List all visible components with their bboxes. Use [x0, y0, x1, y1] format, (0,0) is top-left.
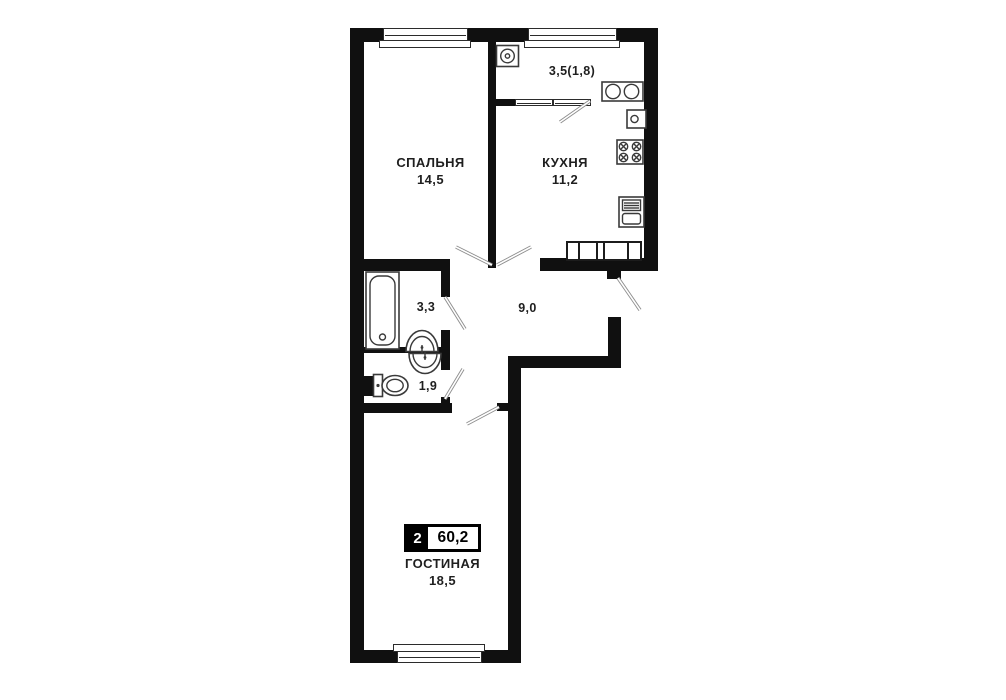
- wash-basin-bathroom-icon: [406, 331, 438, 353]
- balcony-area: 3,5(1,8): [518, 64, 626, 79]
- bedroom-door: [456, 247, 492, 265]
- entry-door: [618, 278, 640, 310]
- fixtures-layer: [0, 0, 1006, 700]
- bathtub-icon: [366, 272, 399, 349]
- kitchen-sink-icon: [627, 110, 646, 128]
- bedroom-area: 14,5: [368, 172, 493, 187]
- balcony-door: [560, 101, 590, 122]
- fridge-icon: [619, 197, 644, 227]
- bedroom-label: СПАЛЬНЯ: [368, 155, 493, 170]
- floorplan-canvas: СПАЛЬНЯ 14,5 КУХНЯ 11,2 3,5(1,8) 3,3 9,0…: [0, 0, 1006, 700]
- hallway-area: 9,0: [495, 301, 560, 316]
- wash-basin-wc-icon: [409, 352, 441, 374]
- living-area: 18,5: [380, 573, 505, 588]
- double-sink-icon: [602, 82, 643, 101]
- washing-machine-icon: [497, 46, 519, 67]
- kitchen-door: [497, 247, 531, 265]
- living-label: ГОСТИНАЯ: [380, 556, 505, 571]
- bathroom-area: 3,3: [396, 300, 456, 315]
- kitchen-label: КУХНЯ: [505, 155, 625, 170]
- apartment-badge: 2 60,2: [404, 524, 481, 552]
- living-door: [467, 407, 499, 424]
- rooms-count: 2: [407, 527, 428, 549]
- wc-area: 1,9: [398, 379, 458, 394]
- total-area: 60,2: [428, 527, 478, 549]
- kitchen-area: 11,2: [505, 172, 625, 187]
- built-in-closet-icon: [567, 242, 641, 260]
